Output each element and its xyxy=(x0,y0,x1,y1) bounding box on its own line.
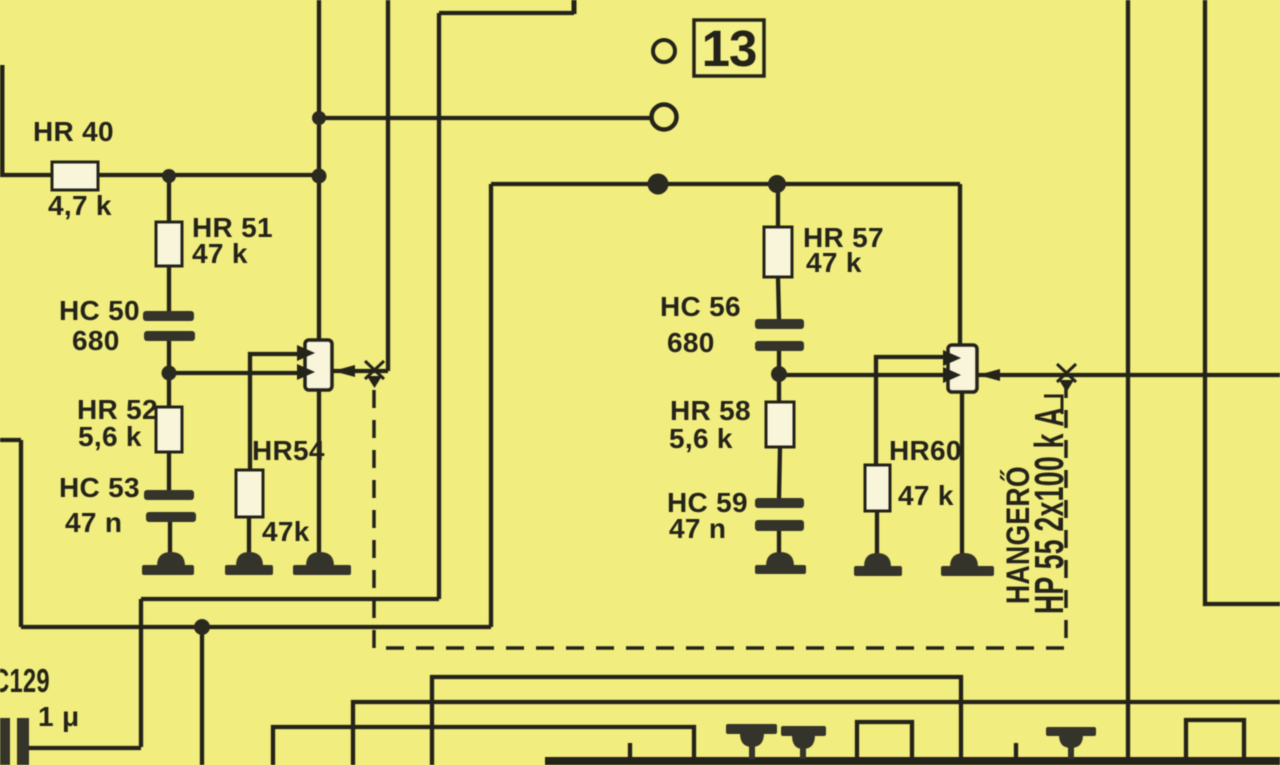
svg-text:47 k: 47 k xyxy=(898,480,954,511)
svg-text:47 k: 47 k xyxy=(192,238,248,269)
svg-text:HR 40: HR 40 xyxy=(33,116,114,147)
svg-text:HR 58: HR 58 xyxy=(670,395,751,426)
svg-text:HC 56: HC 56 xyxy=(660,291,741,322)
svg-text:1 μ: 1 μ xyxy=(38,701,79,732)
svg-text:4,7 k: 4,7 k xyxy=(48,190,112,221)
svg-text:47 n: 47 n xyxy=(669,513,726,544)
svg-text:HC 50: HC 50 xyxy=(59,295,140,326)
svg-text:C129: C129 xyxy=(0,663,50,700)
svg-text:HP 55 2x100 k A: HP 55 2x100 k A xyxy=(1028,407,1073,614)
svg-text:5,6 k: 5,6 k xyxy=(669,423,733,454)
svg-text:680: 680 xyxy=(667,327,715,358)
svg-text:47k: 47k xyxy=(262,516,310,547)
svg-text:HC 53: HC 53 xyxy=(59,472,140,503)
svg-text:47 k: 47 k xyxy=(806,247,862,278)
svg-text:5,6 k: 5,6 k xyxy=(78,421,142,452)
svg-text:13: 13 xyxy=(702,20,757,77)
svg-text:HR60: HR60 xyxy=(889,435,962,466)
svg-text:HR54: HR54 xyxy=(252,435,325,466)
svg-text:47 n: 47 n xyxy=(65,507,122,538)
svg-text:680: 680 xyxy=(72,325,120,356)
